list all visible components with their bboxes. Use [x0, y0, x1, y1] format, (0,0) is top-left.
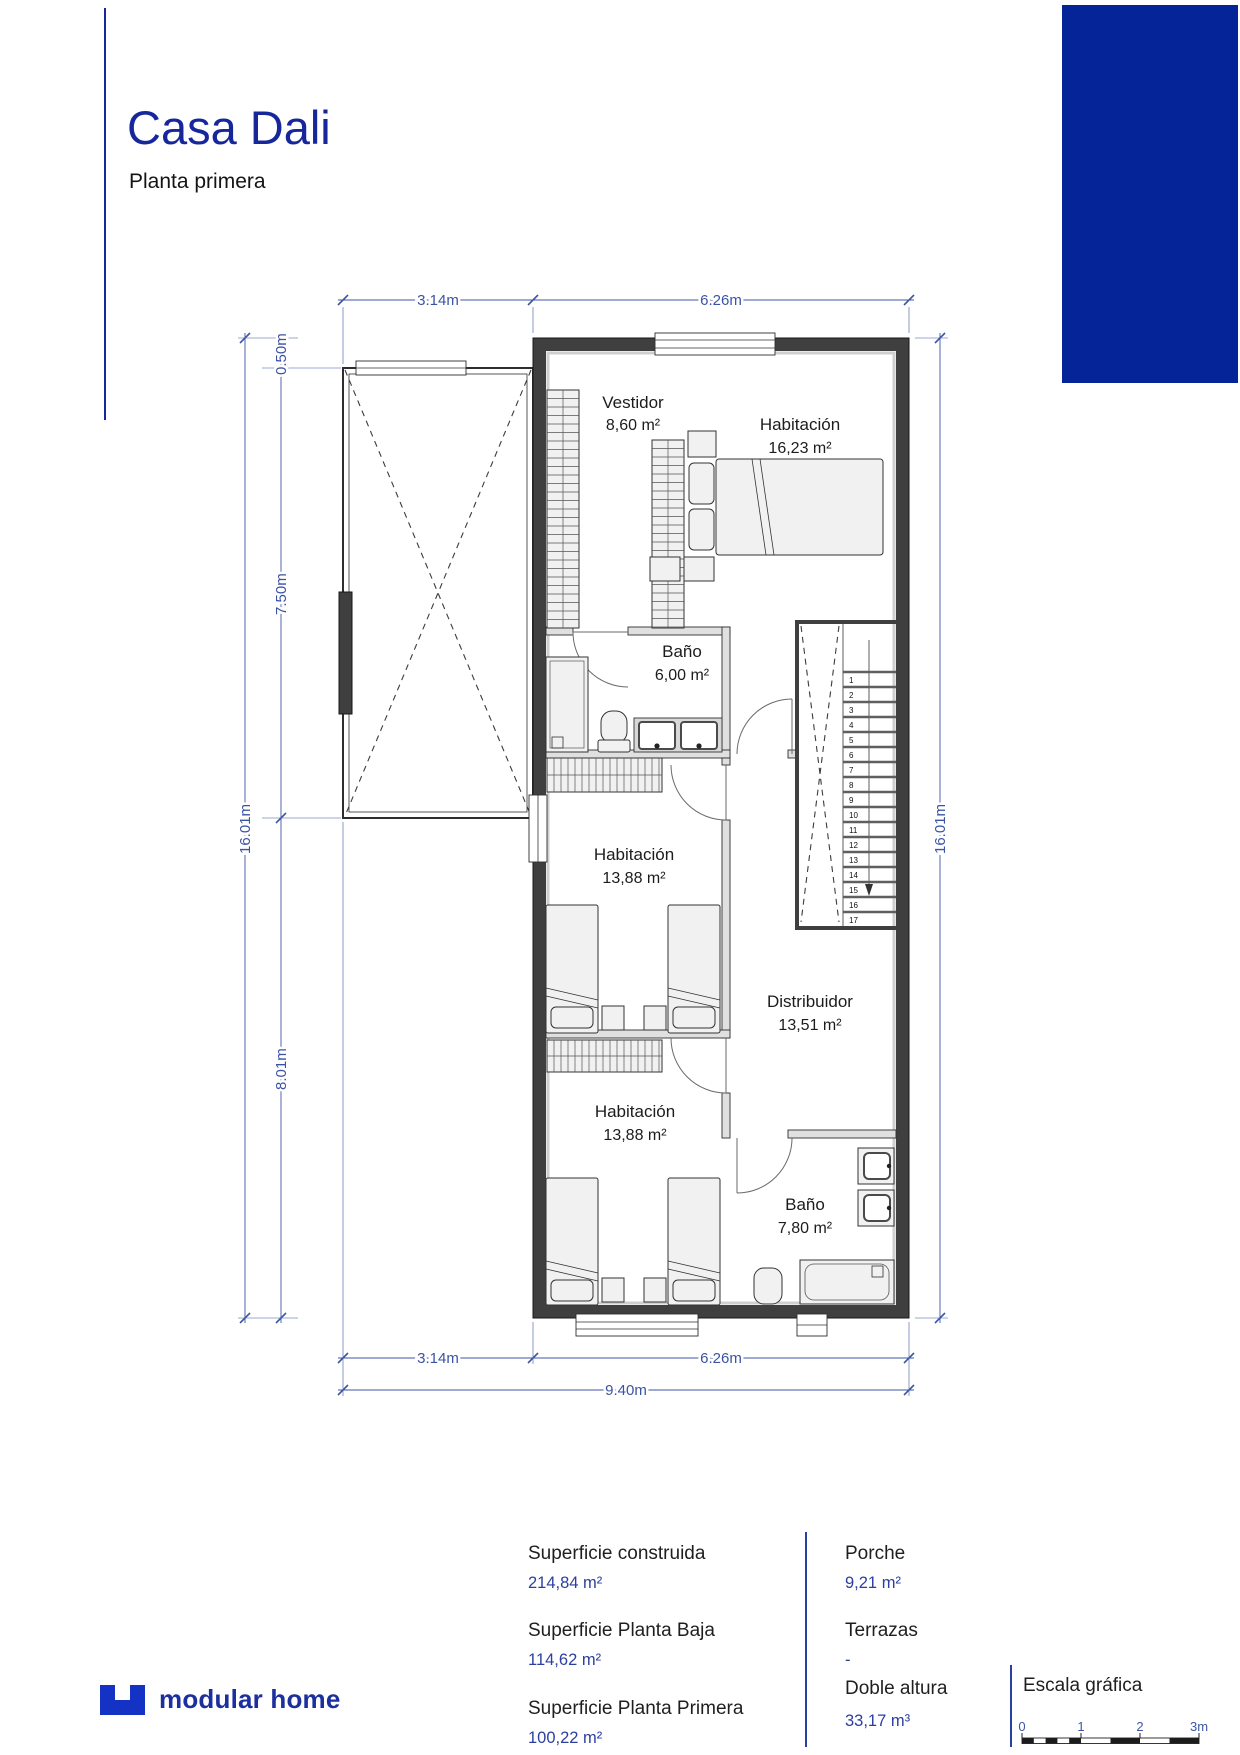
nightstand — [602, 1278, 624, 1302]
svg-text:5: 5 — [849, 736, 854, 745]
terrace-wall-segment — [339, 592, 352, 714]
scale-label-1: 1 — [1077, 1719, 1084, 1734]
drawing-sheet: 1234567891011121314151617 — [0, 0, 1240, 1755]
summary-value-porche: 9,21 m² — [845, 1574, 901, 1593]
double-bed — [716, 459, 883, 555]
scale-title: Escala gráfica — [1023, 1675, 1142, 1697]
summary-value-doble-altura: 33,17 m³ — [845, 1712, 910, 1731]
graphic-scale-bar: 0 1 2 3m — [1018, 1719, 1208, 1744]
dim-left-total: 16.01m — [237, 804, 254, 854]
modular-home-logo: modular home — [100, 1684, 341, 1715]
nightstand — [644, 1006, 666, 1030]
room-area-vestidor: 8,60 m² — [606, 417, 661, 434]
svg-text:16: 16 — [849, 901, 858, 910]
page-title: Casa Dali — [127, 100, 331, 155]
svg-text:9: 9 — [849, 796, 854, 805]
svg-text:6: 6 — [849, 751, 854, 760]
svg-text:12: 12 — [849, 841, 858, 850]
svg-text:14: 14 — [849, 871, 858, 880]
summary-value-planta-primera: 100,22 m² — [528, 1729, 602, 1748]
svg-text:17: 17 — [849, 916, 858, 925]
summary-label-planta-baja: Superficie Planta Baja — [528, 1620, 715, 1642]
window-top — [655, 333, 775, 355]
modular-home-logo-text: modular home — [159, 1684, 341, 1715]
summary-label-porche: Porche — [845, 1543, 905, 1565]
toilet — [601, 711, 627, 743]
room-area-bano-1: 6,00 m² — [655, 667, 710, 684]
dim-left-offset: 0.50m — [273, 333, 290, 375]
summary-label-superficie-construida: Superficie construida — [528, 1543, 705, 1565]
room-label-habitacion-3: Habitación — [595, 1102, 675, 1121]
room-area-habitacion-1: 16,23 m² — [768, 440, 832, 457]
washbasin — [754, 1268, 782, 1304]
nightstand — [684, 557, 714, 581]
svg-text:2: 2 — [849, 691, 854, 700]
dim-top-a: 3.14m — [417, 292, 459, 309]
svg-text:3: 3 — [849, 706, 854, 715]
headboard-shelf — [688, 431, 716, 457]
footer-divider-1 — [805, 1532, 807, 1747]
room-area-bano-2: 7,80 m² — [778, 1220, 833, 1237]
summary-label-doble-altura: Doble altura — [845, 1678, 947, 1700]
room-area-distribuidor: 13,51 m² — [778, 1017, 842, 1034]
summary-label-planta-primera: Superficie Planta Primera — [528, 1698, 743, 1720]
svg-text:8: 8 — [849, 781, 854, 790]
dim-left-upper: 7.50m — [273, 573, 290, 615]
svg-text:7: 7 — [849, 766, 854, 775]
dim-top-b: 6.26m — [700, 292, 742, 309]
svg-text:15: 15 — [849, 886, 858, 895]
pillow — [673, 1280, 715, 1301]
room-area-habitacion-2: 13,88 m² — [602, 870, 666, 887]
dim-right-total: 16.01m — [932, 804, 949, 854]
room-label-distribuidor: Distribuidor — [767, 992, 853, 1011]
dim-bottom-a: 3.14m — [417, 1350, 459, 1367]
room-area-habitacion-3: 13,88 m² — [603, 1127, 667, 1144]
bathtub — [800, 1260, 894, 1304]
header-accent-line — [104, 8, 106, 420]
pillow — [551, 1007, 593, 1028]
dim-bottom-b: 6.26m — [700, 1350, 742, 1367]
dim-bottom-total: 9.40m — [605, 1382, 647, 1399]
svg-text:10: 10 — [849, 811, 858, 820]
room-label-habitacion-2: Habitación — [594, 845, 674, 864]
pillow — [689, 509, 714, 550]
room-label-vestidor: Vestidor — [602, 393, 664, 412]
modular-home-logo-icon — [100, 1685, 145, 1715]
room-label-bano-1: Baño — [662, 642, 702, 661]
floor-plan-drawing: 1234567891011121314151617 — [0, 0, 1240, 1755]
pillow — [673, 1007, 715, 1028]
room-label-habitacion-1: Habitación — [760, 415, 840, 434]
terrace-void — [339, 361, 533, 818]
room-label-bano-2: Baño — [785, 1195, 825, 1214]
summary-value-terrazas: - — [845, 1651, 851, 1670]
brand-color-block — [1062, 5, 1238, 383]
pillow — [551, 1280, 593, 1301]
pillow — [689, 463, 714, 504]
footer-divider-2 — [1010, 1665, 1012, 1747]
svg-text:11: 11 — [849, 826, 858, 835]
svg-text:1: 1 — [849, 676, 854, 685]
scale-label-3: 3m — [1190, 1719, 1208, 1734]
dim-left-lower: 8.01m — [273, 1048, 290, 1090]
summary-value-planta-baja: 114,62 m² — [528, 1651, 601, 1670]
nightstand — [602, 1006, 624, 1030]
window-bottom-left — [576, 1314, 698, 1336]
svg-text:4: 4 — [849, 721, 854, 730]
scale-label-0: 0 — [1018, 1719, 1025, 1734]
summary-value-superficie-construida: 214,84 m² — [528, 1574, 602, 1593]
nightstand — [644, 1278, 666, 1302]
svg-text:13: 13 — [849, 856, 858, 865]
summary-label-terrazas: Terrazas — [845, 1620, 918, 1642]
nightstand — [650, 557, 680, 581]
scale-label-2: 2 — [1136, 1719, 1143, 1734]
page-subtitle: Planta primera — [129, 170, 266, 194]
